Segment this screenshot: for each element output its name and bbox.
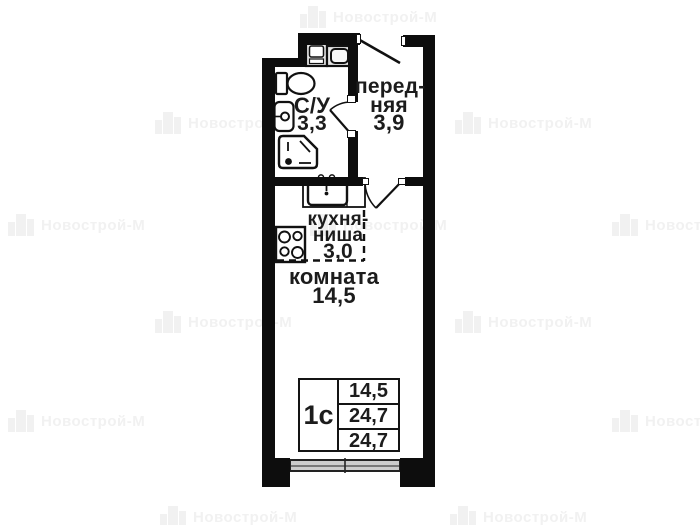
jamb-room-left xyxy=(362,178,369,185)
spec-row-total-area: 24,7 xyxy=(339,405,398,430)
jamb-entrance-left xyxy=(356,34,361,44)
wall-left xyxy=(262,58,275,487)
hall-area: 3,9 xyxy=(355,112,423,134)
stove-icon xyxy=(276,227,305,262)
wall-bottom-right xyxy=(400,458,435,487)
spec-row-overall-area: 24,7 xyxy=(339,430,398,453)
apartment-type: 1с xyxy=(300,380,339,450)
floor-plan: Новострой-М Новострой-М Новострой-М Ново… xyxy=(0,0,700,525)
room-door-icon xyxy=(365,181,402,208)
toilet-icon xyxy=(276,73,315,94)
bathroom-area: 3,3 xyxy=(277,113,347,134)
wall-right xyxy=(423,35,435,487)
kitchen-area: 3,0 xyxy=(303,241,373,262)
window xyxy=(290,458,400,473)
jamb-entrance-right xyxy=(401,36,406,46)
jamb-room-right xyxy=(398,178,406,185)
entrance-door-icon xyxy=(358,39,400,63)
dryer-icon xyxy=(306,43,327,66)
wall-niche-top xyxy=(298,33,360,45)
shower-icon xyxy=(279,136,317,168)
wall-room-top-left xyxy=(262,177,363,186)
living-room-area: 14,5 xyxy=(284,285,384,307)
spec-row-living-area: 14,5 xyxy=(339,380,398,405)
apartment-spec-table: 1с 14,5 24,7 24,7 xyxy=(298,378,400,452)
wall-bottom-left xyxy=(262,458,290,487)
